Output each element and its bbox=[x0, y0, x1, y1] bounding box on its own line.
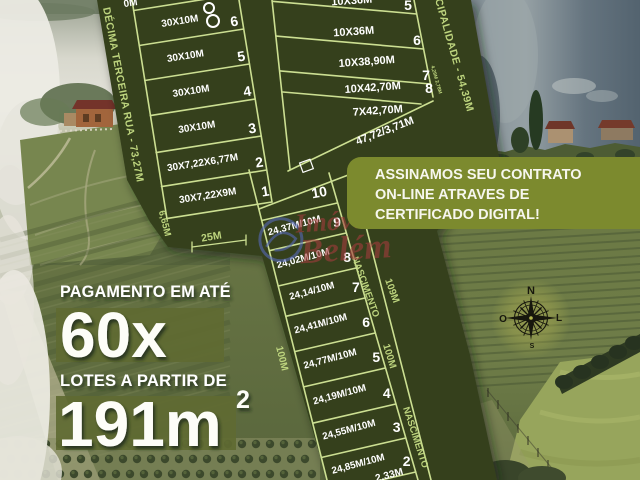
svg-text:5: 5 bbox=[372, 349, 380, 365]
svg-text:L: L bbox=[556, 313, 562, 324]
svg-text:3: 3 bbox=[393, 419, 401, 435]
svg-text:10: 10 bbox=[310, 183, 328, 201]
svg-text:60x: 60x bbox=[60, 299, 167, 371]
svg-text:191m: 191m bbox=[58, 388, 222, 460]
svg-text:8: 8 bbox=[425, 80, 433, 96]
svg-text:2: 2 bbox=[403, 453, 411, 469]
svg-text:5: 5 bbox=[404, 0, 412, 13]
svg-text:O: O bbox=[499, 314, 507, 325]
svg-text:ON-LINE ATRAVES DE: ON-LINE ATRAVES DE bbox=[375, 187, 530, 203]
svg-text:N: N bbox=[527, 285, 535, 297]
svg-text:CERTIFICADO DIGITAL!: CERTIFICADO DIGITAL! bbox=[375, 207, 540, 223]
svg-text:2: 2 bbox=[236, 386, 250, 414]
svg-text:4: 4 bbox=[383, 385, 391, 401]
svg-text:ASSINAMOS SEU CONTRATO: ASSINAMOS SEU CONTRATO bbox=[375, 167, 582, 183]
svg-text:6: 6 bbox=[362, 314, 370, 330]
svg-text:S: S bbox=[530, 343, 535, 350]
svg-text:Belém: Belém bbox=[298, 226, 393, 271]
svg-text:6: 6 bbox=[413, 32, 421, 48]
